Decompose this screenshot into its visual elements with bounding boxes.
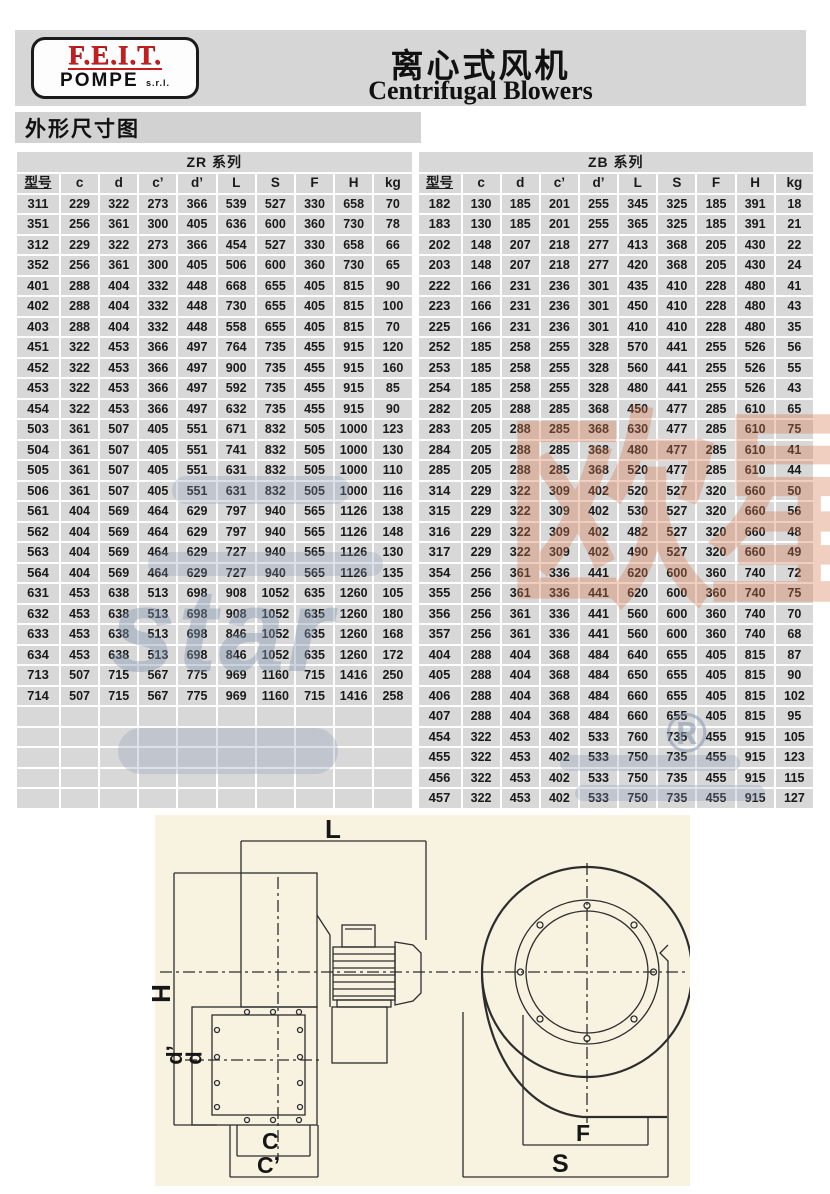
- value-cell: 480: [737, 318, 774, 337]
- value-cell: [335, 789, 372, 808]
- model-cell: 634: [17, 646, 59, 665]
- value-cell: 660: [619, 687, 656, 706]
- value-cell: 255: [541, 379, 578, 398]
- series-title: ZR 系列: [17, 152, 412, 172]
- value-cell: 87: [776, 646, 813, 665]
- table-row: 35725636133644156060036074068: [419, 625, 814, 644]
- value-cell: 832: [257, 420, 294, 439]
- value-cell: 273: [139, 195, 176, 214]
- value-cell: 631: [218, 482, 255, 501]
- value-cell: 205: [463, 420, 500, 439]
- value-cell: 322: [463, 789, 500, 808]
- value-cell: 480: [737, 277, 774, 296]
- table-row: 63445363851369884610526351260172: [17, 646, 412, 665]
- value-cell: 368: [580, 420, 617, 439]
- value-cell: 764: [218, 338, 255, 357]
- value-cell: 402: [541, 728, 578, 747]
- value-cell: 41: [776, 277, 813, 296]
- model-cell: [17, 789, 59, 808]
- value-cell: 231: [502, 277, 539, 296]
- model-cell: 406: [419, 687, 461, 706]
- value-cell: 715: [100, 666, 137, 685]
- value-cell: 405: [178, 256, 215, 275]
- table-row: [17, 707, 412, 726]
- value-cell: 48: [776, 523, 813, 542]
- value-cell: 638: [100, 646, 137, 665]
- value-cell: [335, 728, 372, 747]
- table-row: 45332245336649759273545591585: [17, 379, 412, 398]
- value-cell: 366: [139, 400, 176, 419]
- value-cell: 402: [580, 482, 617, 501]
- table-row: 35625636133644156060036074070: [419, 605, 814, 624]
- value-cell: 325: [658, 195, 695, 214]
- value-cell: 507: [61, 666, 98, 685]
- value-cell: 600: [257, 256, 294, 275]
- value-cell: 185: [697, 195, 734, 214]
- logo-feit-text: F.E.I.T.: [68, 42, 162, 70]
- value-cell: 70: [776, 605, 813, 624]
- value-cell: 410: [619, 318, 656, 337]
- value-cell: [374, 769, 411, 788]
- value-cell: 1052: [257, 646, 294, 665]
- value-cell: 477: [658, 400, 695, 419]
- value-cell: 258: [502, 338, 539, 357]
- value-cell: 256: [61, 215, 98, 234]
- value-cell: [100, 769, 137, 788]
- value-cell: 309: [541, 482, 578, 501]
- value-cell: 130: [463, 195, 500, 214]
- value-cell: 410: [658, 277, 695, 296]
- model-cell: 314: [419, 482, 461, 501]
- value-cell: 44: [776, 461, 813, 480]
- value-cell: 368: [580, 461, 617, 480]
- value-cell: 480: [737, 297, 774, 316]
- model-cell: 632: [17, 605, 59, 624]
- column-header: S: [257, 174, 294, 193]
- value-cell: 366: [139, 338, 176, 357]
- value-cell: 1260: [335, 584, 372, 603]
- value-cell: 441: [580, 564, 617, 583]
- value-cell: 255: [541, 359, 578, 378]
- value-cell: [139, 769, 176, 788]
- value-cell: [61, 728, 98, 747]
- value-cell: [374, 728, 411, 747]
- value-cell: 453: [100, 359, 137, 378]
- value-cell: 533: [580, 789, 617, 808]
- value-cell: 527: [658, 482, 695, 501]
- value-cell: 484: [580, 707, 617, 726]
- value-cell: 533: [580, 769, 617, 788]
- value-cell: 330: [296, 195, 333, 214]
- value-cell: 741: [218, 441, 255, 460]
- column-header: d: [502, 174, 539, 193]
- value-cell: 391: [737, 215, 774, 234]
- value-cell: 328: [580, 379, 617, 398]
- value-cell: 441: [580, 605, 617, 624]
- value-cell: 526: [737, 359, 774, 378]
- value-cell: 660: [619, 707, 656, 726]
- value-cell: 361: [502, 605, 539, 624]
- value-cell: 405: [697, 687, 734, 706]
- value-cell: 160: [374, 359, 411, 378]
- value-cell: 506: [218, 256, 255, 275]
- value-cell: 110: [374, 461, 411, 480]
- column-header: 型号: [419, 174, 461, 193]
- value-cell: 256: [463, 584, 500, 603]
- value-cell: 450: [619, 400, 656, 419]
- value-cell: 256: [463, 564, 500, 583]
- value-cell: 900: [218, 359, 255, 378]
- value-cell: 940: [257, 543, 294, 562]
- table-row: 31422932230940252052732066050: [419, 482, 814, 501]
- value-cell: 1126: [335, 543, 372, 562]
- value-cell: 453: [100, 338, 137, 357]
- company-logo: F.E.I.T. POMPE s.r.l.: [31, 37, 199, 99]
- value-cell: 530: [619, 502, 656, 521]
- value-cell: 336: [541, 625, 578, 644]
- value-cell: 301: [580, 318, 617, 337]
- value-cell: 477: [658, 420, 695, 439]
- value-cell: [296, 748, 333, 767]
- column-header: c: [61, 174, 98, 193]
- value-cell: [218, 707, 255, 726]
- value-cell: 507: [61, 687, 98, 706]
- side-view: [160, 841, 685, 1177]
- value-cell: 453: [502, 789, 539, 808]
- table-row: 31622932230940248252732066048: [419, 523, 814, 542]
- value-cell: [257, 769, 294, 788]
- value-cell: 815: [335, 277, 372, 296]
- model-cell: 561: [17, 502, 59, 521]
- value-cell: 201: [541, 215, 578, 234]
- model-cell: 183: [419, 215, 461, 234]
- model-cell: 356: [419, 605, 461, 624]
- value-cell: 229: [61, 236, 98, 255]
- value-cell: 526: [737, 338, 774, 357]
- model-cell: 315: [419, 502, 461, 521]
- value-cell: [296, 728, 333, 747]
- value-cell: [178, 769, 215, 788]
- value-cell: 185: [502, 215, 539, 234]
- value-cell: 1260: [335, 646, 372, 665]
- table-row: 40128840433244866865540581590: [17, 277, 412, 296]
- value-cell: 610: [737, 461, 774, 480]
- value-cell: 404: [61, 564, 98, 583]
- column-header: F: [296, 174, 333, 193]
- value-cell: 168: [374, 625, 411, 644]
- value-cell: 361: [502, 584, 539, 603]
- value-cell: 658: [335, 195, 372, 214]
- value-cell: 405: [139, 441, 176, 460]
- value-cell: 320: [697, 482, 734, 501]
- value-cell: 41: [776, 441, 813, 460]
- value-cell: 405: [139, 461, 176, 480]
- value-cell: 255: [580, 215, 617, 234]
- value-cell: 288: [463, 707, 500, 726]
- value-cell: 513: [139, 584, 176, 603]
- value-cell: 21: [776, 215, 813, 234]
- value-cell: 915: [335, 359, 372, 378]
- dimension-drawing: [155, 815, 690, 1186]
- value-cell: 551: [178, 420, 215, 439]
- model-cell: 202: [419, 236, 461, 255]
- model-cell: 311: [17, 195, 59, 214]
- value-cell: 1416: [335, 687, 372, 706]
- value-cell: 940: [257, 523, 294, 542]
- value-cell: 288: [502, 420, 539, 439]
- model-cell: 254: [419, 379, 461, 398]
- value-cell: 908: [218, 584, 255, 603]
- value-cell: 638: [100, 605, 137, 624]
- value-cell: 1160: [257, 687, 294, 706]
- value-cell: 288: [61, 318, 98, 337]
- value-cell: 65: [374, 256, 411, 275]
- table-row: 40528840436848465065540581590: [419, 666, 814, 685]
- value-cell: 49: [776, 543, 813, 562]
- value-cell: 320: [697, 543, 734, 562]
- value-cell: 735: [658, 789, 695, 808]
- value-cell: [178, 748, 215, 767]
- value-cell: 368: [658, 256, 695, 275]
- model-cell: 253: [419, 359, 461, 378]
- value-cell: 846: [218, 646, 255, 665]
- value-cell: 455: [296, 379, 333, 398]
- logo-pompe-word: POMPE: [60, 70, 139, 91]
- value-cell: 600: [658, 564, 695, 583]
- table-row: 25418525825532848044125552643: [419, 379, 814, 398]
- value-cell: 322: [502, 482, 539, 501]
- model-cell: 454: [17, 400, 59, 419]
- model-cell: 631: [17, 584, 59, 603]
- value-cell: 185: [502, 195, 539, 214]
- value-cell: 480: [619, 379, 656, 398]
- value-cell: 336: [541, 564, 578, 583]
- table-row: 18313018520125536532518539121: [419, 215, 814, 234]
- table-row: 18213018520125534532518539118: [419, 195, 814, 214]
- value-cell: 361: [61, 461, 98, 480]
- value-cell: 698: [178, 625, 215, 644]
- value-cell: 815: [335, 318, 372, 337]
- value-cell: 551: [178, 441, 215, 460]
- value-cell: [139, 789, 176, 808]
- value-cell: 404: [61, 502, 98, 521]
- value-cell: 565: [296, 564, 333, 583]
- value-cell: 430: [737, 236, 774, 255]
- value-cell: 600: [257, 215, 294, 234]
- model-cell: 225: [419, 318, 461, 337]
- value-cell: 205: [463, 461, 500, 480]
- value-cell: 464: [139, 564, 176, 583]
- value-cell: 301: [580, 297, 617, 316]
- page: F.E.I.T. POMPE s.r.l. 离心式风机 Centrifugal …: [0, 0, 830, 1194]
- table-row: [17, 728, 412, 747]
- value-cell: 360: [697, 605, 734, 624]
- value-cell: 636: [218, 215, 255, 234]
- value-cell: 85: [374, 379, 411, 398]
- value-cell: 402: [541, 769, 578, 788]
- model-cell: 562: [17, 523, 59, 542]
- page-title-english: Centrifugal Blowers: [215, 76, 746, 106]
- column-header: S: [658, 174, 695, 193]
- table-row: 451322453366497764735455915120: [17, 338, 412, 357]
- value-cell: 505: [296, 441, 333, 460]
- model-cell: [17, 769, 59, 788]
- value-cell: 453: [61, 646, 98, 665]
- value-cell: 368: [580, 441, 617, 460]
- value-cell: 630: [619, 420, 656, 439]
- value-cell: [296, 769, 333, 788]
- value-cell: 730: [335, 256, 372, 275]
- value-cell: 236: [541, 318, 578, 337]
- value-cell: 1000: [335, 420, 372, 439]
- model-cell: 284: [419, 441, 461, 460]
- value-cell: 255: [580, 195, 617, 214]
- value-cell: 50: [776, 482, 813, 501]
- value-cell: [218, 748, 255, 767]
- value-cell: 256: [61, 256, 98, 275]
- value-cell: 231: [502, 297, 539, 316]
- value-cell: 288: [502, 441, 539, 460]
- value-cell: 285: [697, 461, 734, 480]
- value-cell: 915: [737, 789, 774, 808]
- column-header: H: [737, 174, 774, 193]
- table-row: 40428840436848464065540581587: [419, 646, 814, 665]
- value-cell: 1000: [335, 441, 372, 460]
- table-row: 40328840433244855865540581570: [17, 318, 412, 337]
- table-row: 40728840436848466065540581595: [419, 707, 814, 726]
- value-cell: 258: [502, 379, 539, 398]
- value-cell: 56: [776, 338, 813, 357]
- value-cell: 569: [100, 543, 137, 562]
- value-cell: 441: [580, 584, 617, 603]
- value-cell: 322: [61, 400, 98, 419]
- value-cell: 455: [697, 769, 734, 788]
- column-header: d: [100, 174, 137, 193]
- value-cell: 332: [139, 277, 176, 296]
- model-cell: 283: [419, 420, 461, 439]
- value-cell: 70: [374, 195, 411, 214]
- value-cell: 453: [502, 748, 539, 767]
- value-cell: 288: [502, 461, 539, 480]
- value-cell: 527: [658, 543, 695, 562]
- value-cell: 567: [139, 666, 176, 685]
- table-row: 28520528828536852047728561044: [419, 461, 814, 480]
- value-cell: 490: [619, 543, 656, 562]
- table-row: [17, 769, 412, 788]
- value-cell: 228: [697, 277, 734, 296]
- value-cell: 288: [61, 297, 98, 316]
- value-cell: 285: [541, 441, 578, 460]
- model-cell: [17, 728, 59, 747]
- value-cell: 441: [658, 338, 695, 357]
- column-header: L: [619, 174, 656, 193]
- value-cell: [61, 748, 98, 767]
- value-cell: 435: [619, 277, 656, 296]
- value-cell: 322: [463, 769, 500, 788]
- value-cell: 360: [296, 215, 333, 234]
- value-cell: 322: [463, 748, 500, 767]
- value-cell: 455: [296, 359, 333, 378]
- value-cell: 610: [737, 420, 774, 439]
- value-cell: 715: [296, 687, 333, 706]
- series-title-row: ZB 系列: [419, 152, 814, 172]
- value-cell: 229: [61, 195, 98, 214]
- model-cell: 223: [419, 297, 461, 316]
- model-cell: 455: [419, 748, 461, 767]
- model-cell: 405: [419, 666, 461, 685]
- value-cell: 361: [100, 215, 137, 234]
- value-cell: 405: [296, 318, 333, 337]
- value-cell: 539: [218, 195, 255, 214]
- value-cell: 185: [463, 379, 500, 398]
- model-cell: 503: [17, 420, 59, 439]
- value-cell: 229: [463, 543, 500, 562]
- value-cell: 123: [374, 420, 411, 439]
- value-cell: 166: [463, 297, 500, 316]
- value-cell: 638: [100, 625, 137, 644]
- value-cell: 250: [374, 666, 411, 685]
- value-cell: 185: [697, 215, 734, 234]
- model-cell: 222: [419, 277, 461, 296]
- value-cell: 172: [374, 646, 411, 665]
- value-cell: 366: [178, 236, 215, 255]
- value-cell: 288: [502, 400, 539, 419]
- value-cell: 915: [737, 769, 774, 788]
- value-cell: 668: [218, 277, 255, 296]
- value-cell: 592: [218, 379, 255, 398]
- value-cell: 454: [218, 236, 255, 255]
- value-cell: 1000: [335, 482, 372, 501]
- table-row: 71450771556777596911607151416258: [17, 687, 412, 706]
- label-C: C: [262, 1128, 279, 1155]
- value-cell: 527: [658, 523, 695, 542]
- value-cell: 70: [374, 318, 411, 337]
- value-cell: 330: [296, 236, 333, 255]
- value-cell: 527: [658, 502, 695, 521]
- value-cell: 527: [257, 195, 294, 214]
- value-cell: 90: [374, 277, 411, 296]
- model-cell: 401: [17, 277, 59, 296]
- value-cell: 185: [463, 338, 500, 357]
- value-cell: 507: [100, 461, 137, 480]
- value-cell: 660: [737, 523, 774, 542]
- model-cell: 714: [17, 687, 59, 706]
- table-row: 5644045694646297279405651126135: [17, 564, 412, 583]
- value-cell: 66: [374, 236, 411, 255]
- value-cell: 1126: [335, 564, 372, 583]
- model-cell: 505: [17, 461, 59, 480]
- value-cell: 123: [776, 748, 813, 767]
- value-cell: 404: [502, 666, 539, 685]
- value-cell: 477: [658, 461, 695, 480]
- table-row: 35525636133644162060036074075: [419, 584, 814, 603]
- value-cell: [374, 789, 411, 808]
- value-cell: 441: [658, 379, 695, 398]
- value-cell: 797: [218, 523, 255, 542]
- table-row: 28420528828536848047728561041: [419, 441, 814, 460]
- table-row: 455322453402533750735455915123: [419, 748, 814, 767]
- column-header: c: [463, 174, 500, 193]
- model-cell: 452: [17, 359, 59, 378]
- value-cell: 404: [100, 297, 137, 316]
- value-cell: 116: [374, 482, 411, 501]
- value-cell: 464: [139, 502, 176, 521]
- value-cell: 127: [776, 789, 813, 808]
- value-cell: 218: [541, 256, 578, 275]
- column-header: c’: [541, 174, 578, 193]
- value-cell: 915: [335, 379, 372, 398]
- value-cell: 404: [100, 277, 137, 296]
